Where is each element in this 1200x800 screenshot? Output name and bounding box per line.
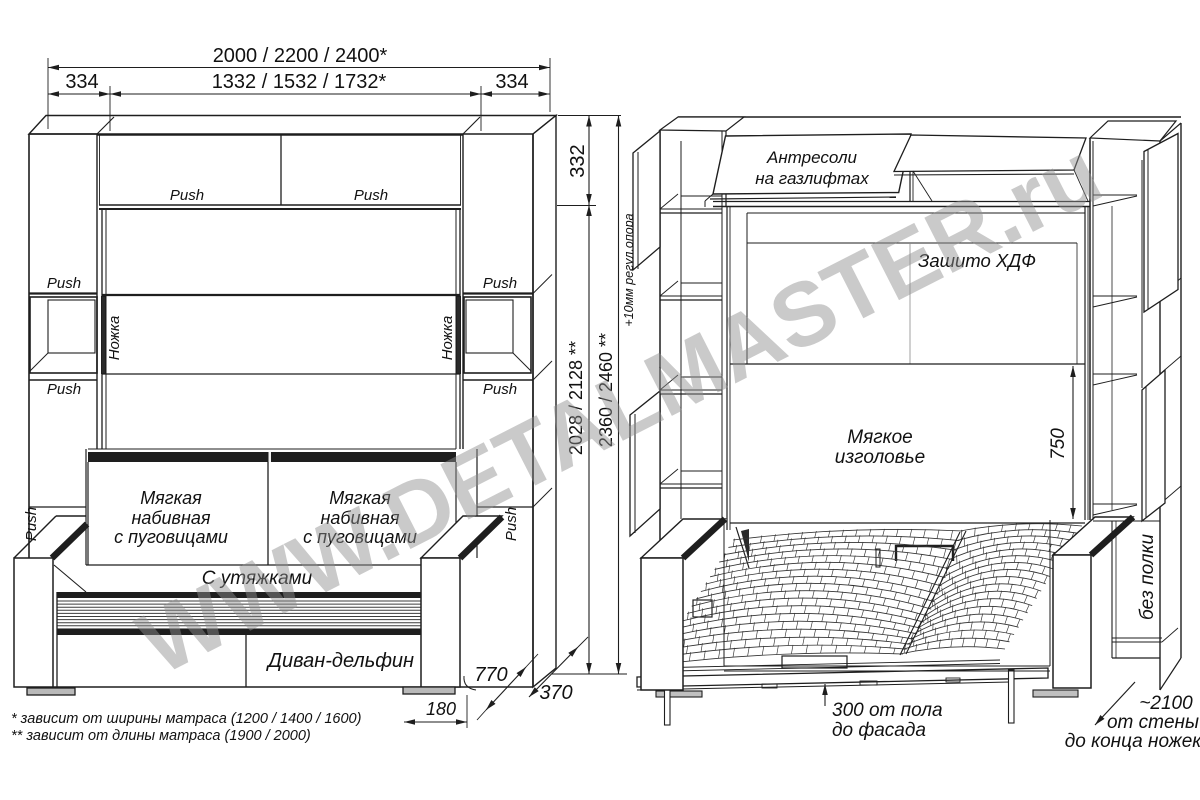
svg-text:Мягкая: Мягкая (140, 488, 202, 508)
svg-text:набивная: набивная (132, 508, 211, 528)
svg-text:300 от пола: 300 от пола (832, 700, 943, 721)
svg-text:Мягкое: Мягкое (847, 427, 912, 448)
svg-text:Push: Push (354, 187, 388, 204)
svg-text:2000 / 2200 / 2400*: 2000 / 2200 / 2400* (213, 45, 388, 67)
svg-text:Push: Push (47, 275, 81, 292)
svg-text:* зависит от ширины матраса (1: * зависит от ширины матраса (1200 / 1400… (11, 711, 361, 727)
svg-text:Push: Push (170, 187, 204, 204)
svg-text:изголовье: изголовье (835, 447, 925, 468)
svg-text:Push: Push (483, 381, 517, 398)
svg-text:** зависит от длины матраса (1: ** зависит от длины матраса (1900 / 2000… (11, 728, 311, 744)
svg-text:334: 334 (65, 71, 98, 93)
svg-text:334: 334 (495, 71, 528, 93)
svg-text:на газлифтах: на газлифтах (755, 169, 869, 188)
svg-text:Диван-дельфин: Диван-дельфин (266, 650, 414, 672)
svg-text:770: 770 (474, 664, 507, 686)
svg-text:750: 750 (1048, 428, 1069, 460)
svg-text:без полки: без полки (1137, 534, 1158, 620)
svg-text:~2100: ~2100 (1139, 693, 1193, 714)
svg-text:370: 370 (539, 682, 572, 704)
svg-text:Ножка: Ножка (106, 316, 123, 361)
svg-text:от стены: от стены (1107, 712, 1199, 733)
svg-text:1332 / 1532 / 1732*: 1332 / 1532 / 1732* (212, 71, 387, 93)
svg-text:до конца ножек: до конца ножек (1065, 731, 1200, 752)
svg-text:Ножка: Ножка (439, 316, 456, 361)
svg-text:Антресоли: Антресоли (766, 148, 858, 167)
svg-text:Push: Push (47, 381, 81, 398)
svg-text:до фасада: до фасада (832, 720, 926, 741)
svg-text:Push: Push (483, 275, 517, 292)
svg-text:332: 332 (567, 144, 589, 177)
svg-text:Push: Push (23, 507, 40, 541)
svg-text:180: 180 (426, 699, 456, 719)
svg-text:с пуговицами: с пуговицами (114, 527, 228, 547)
